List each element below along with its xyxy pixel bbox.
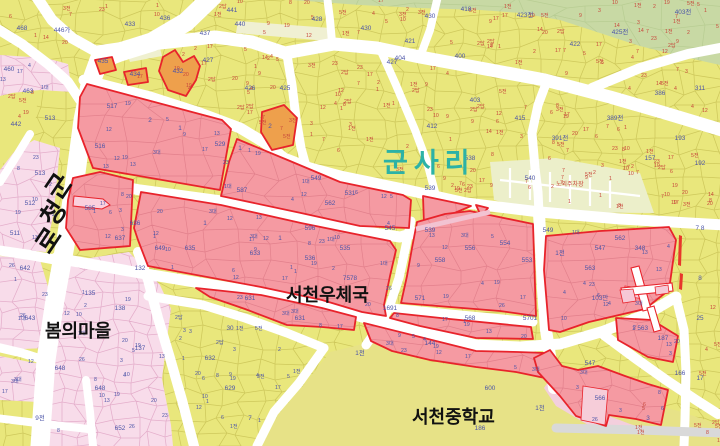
svg-text:2: 2 xyxy=(194,46,197,52)
svg-text:12: 12 xyxy=(106,127,112,133)
svg-text:7: 7 xyxy=(524,105,527,111)
svg-text:2답: 2답 xyxy=(175,314,183,321)
svg-text:12: 12 xyxy=(662,49,668,55)
svg-text:540: 540 xyxy=(525,175,536,182)
svg-text:9: 9 xyxy=(398,333,401,339)
svg-text:568: 568 xyxy=(465,315,476,322)
svg-text:25: 25 xyxy=(696,315,704,322)
svg-text:17: 17 xyxy=(596,42,602,48)
svg-text:192: 192 xyxy=(695,160,706,167)
svg-text:19: 19 xyxy=(671,200,677,206)
svg-text:26: 26 xyxy=(129,424,135,430)
svg-text:1전: 1전 xyxy=(383,102,391,109)
svg-text:19: 19 xyxy=(114,392,120,398)
svg-text:봄의마을: 봄의마을 xyxy=(45,321,111,341)
svg-text:20: 20 xyxy=(304,0,310,6)
svg-text:2답: 2답 xyxy=(8,93,16,100)
svg-text:19: 19 xyxy=(494,280,500,286)
svg-text:1대: 1대 xyxy=(327,235,335,243)
svg-text:1대: 1대 xyxy=(41,83,49,91)
svg-text:20: 20 xyxy=(707,201,713,207)
svg-text:2답: 2답 xyxy=(470,106,478,113)
svg-text:8: 8 xyxy=(658,390,661,396)
svg-text:1전: 1전 xyxy=(634,2,642,9)
svg-text:6: 6 xyxy=(661,406,664,412)
svg-text:1: 1 xyxy=(392,101,395,107)
svg-text:446가: 446가 xyxy=(54,25,71,34)
svg-text:3대: 3대 xyxy=(291,307,299,315)
svg-text:400: 400 xyxy=(455,53,466,60)
svg-text:3대: 3대 xyxy=(11,377,19,385)
svg-text:648: 648 xyxy=(55,365,66,372)
svg-text:1: 1 xyxy=(609,176,612,182)
svg-text:433: 433 xyxy=(125,21,136,28)
svg-text:3대: 3대 xyxy=(580,368,588,376)
svg-text:5전: 5전 xyxy=(255,325,263,332)
svg-text:23: 23 xyxy=(237,295,243,301)
svg-text:2: 2 xyxy=(84,303,87,309)
svg-text:5전: 5전 xyxy=(714,341,720,348)
svg-text:3전: 3전 xyxy=(257,373,265,380)
svg-text:435: 435 xyxy=(98,58,109,65)
svg-text:3: 3 xyxy=(629,39,632,45)
svg-text:600: 600 xyxy=(485,385,496,392)
svg-text:2: 2 xyxy=(451,183,454,189)
svg-text:5전: 5전 xyxy=(691,152,699,159)
svg-text:19: 19 xyxy=(255,151,261,157)
svg-text:8: 8 xyxy=(289,0,292,6)
svg-text:596: 596 xyxy=(305,225,316,232)
svg-text:13: 13 xyxy=(214,131,220,137)
svg-text:4: 4 xyxy=(446,71,449,77)
svg-text:425: 425 xyxy=(280,85,291,92)
svg-text:135: 135 xyxy=(85,290,96,297)
svg-text:391전: 391전 xyxy=(552,133,569,142)
svg-text:1전: 1전 xyxy=(293,368,301,375)
svg-text:20: 20 xyxy=(122,338,128,344)
svg-text:430: 430 xyxy=(425,13,436,20)
svg-text:7: 7 xyxy=(636,49,639,55)
svg-text:10: 10 xyxy=(76,312,82,318)
svg-text:3: 3 xyxy=(646,415,650,422)
svg-text:3: 3 xyxy=(310,121,313,127)
svg-text:642: 642 xyxy=(20,265,31,272)
svg-text:17: 17 xyxy=(502,13,508,19)
svg-text:14: 14 xyxy=(638,28,644,34)
svg-text:1전: 1전 xyxy=(555,248,565,257)
svg-text:2답: 2답 xyxy=(477,103,485,110)
svg-text:20: 20 xyxy=(232,76,238,82)
svg-text:13: 13 xyxy=(256,215,262,221)
svg-text:23: 23 xyxy=(319,239,325,245)
svg-text:8: 8 xyxy=(308,241,311,247)
svg-text:652: 652 xyxy=(115,425,126,432)
svg-text:430: 430 xyxy=(361,25,372,32)
svg-text:2: 2 xyxy=(332,266,335,272)
svg-text:5: 5 xyxy=(583,51,586,57)
svg-text:2: 2 xyxy=(182,52,185,58)
svg-text:20: 20 xyxy=(270,85,276,91)
svg-text:23: 23 xyxy=(612,146,618,152)
svg-text:193: 193 xyxy=(675,135,686,142)
svg-text:412: 412 xyxy=(427,123,438,130)
svg-text:1대: 1대 xyxy=(380,259,388,267)
svg-text:632: 632 xyxy=(205,355,216,362)
svg-text:4: 4 xyxy=(628,86,631,92)
svg-text:7: 7 xyxy=(69,12,72,18)
svg-text:423전: 423전 xyxy=(517,10,534,19)
svg-text:10: 10 xyxy=(624,146,630,152)
svg-text:404: 404 xyxy=(395,55,406,62)
svg-text:166: 166 xyxy=(675,370,686,377)
svg-text:103만: 103만 xyxy=(592,293,609,302)
svg-text:1: 1 xyxy=(290,265,293,271)
svg-text:19: 19 xyxy=(122,155,128,161)
svg-text:1전: 1전 xyxy=(214,11,222,18)
svg-text:8: 8 xyxy=(618,203,621,209)
svg-text:558: 558 xyxy=(435,257,446,264)
svg-text:2답: 2답 xyxy=(412,87,420,94)
svg-text:3전: 3전 xyxy=(683,201,691,208)
svg-text:529: 529 xyxy=(215,141,226,148)
svg-text:536: 536 xyxy=(305,255,316,262)
svg-text:421: 421 xyxy=(405,38,416,45)
svg-text:12: 12 xyxy=(301,192,307,198)
svg-text:9: 9 xyxy=(425,82,428,88)
svg-text:460: 460 xyxy=(4,66,15,73)
svg-text:7: 7 xyxy=(248,415,252,422)
svg-text:5: 5 xyxy=(276,57,279,63)
svg-text:7: 7 xyxy=(322,137,325,143)
svg-text:3: 3 xyxy=(520,134,523,140)
svg-text:20: 20 xyxy=(521,334,527,340)
svg-text:1: 1 xyxy=(310,132,313,138)
svg-text:3: 3 xyxy=(121,227,124,233)
svg-text:17: 17 xyxy=(696,375,704,382)
svg-text:2: 2 xyxy=(268,123,272,130)
svg-text:19: 19 xyxy=(563,114,569,120)
svg-text:7: 7 xyxy=(357,81,360,87)
svg-text:649: 649 xyxy=(155,245,166,252)
svg-text:2: 2 xyxy=(593,170,596,176)
svg-text:1전: 1전 xyxy=(496,129,504,136)
svg-text:4: 4 xyxy=(667,244,670,250)
svg-text:19: 19 xyxy=(15,210,21,216)
svg-text:5: 5 xyxy=(385,19,388,25)
svg-text:9전: 9전 xyxy=(35,413,45,422)
svg-text:426: 426 xyxy=(245,85,256,92)
svg-text:5: 5 xyxy=(697,2,700,8)
svg-text:2답: 2답 xyxy=(246,103,254,110)
svg-text:8: 8 xyxy=(698,275,702,282)
svg-text:2: 2 xyxy=(377,80,380,86)
svg-text:4: 4 xyxy=(18,114,21,120)
svg-text:3: 3 xyxy=(233,347,236,353)
svg-text:12: 12 xyxy=(702,108,708,114)
svg-text:1: 1 xyxy=(182,356,185,362)
svg-text:1대: 1대 xyxy=(302,177,310,185)
svg-text:1: 1 xyxy=(34,33,37,39)
svg-text:1: 1 xyxy=(258,418,261,424)
svg-text:4: 4 xyxy=(691,104,694,110)
svg-text:12: 12 xyxy=(306,33,312,39)
svg-text:5전: 5전 xyxy=(283,133,291,140)
svg-text:3: 3 xyxy=(119,208,122,214)
svg-text:1전: 1전 xyxy=(515,59,523,66)
svg-text:1: 1 xyxy=(568,199,571,205)
svg-text:3: 3 xyxy=(183,328,186,334)
svg-text:547: 547 xyxy=(595,245,606,252)
svg-text:10: 10 xyxy=(664,192,670,198)
svg-text:4: 4 xyxy=(28,63,31,69)
svg-text:8: 8 xyxy=(396,313,399,319)
svg-text:1전: 1전 xyxy=(355,348,365,357)
svg-text:17: 17 xyxy=(555,48,561,54)
svg-text:631: 631 xyxy=(295,315,306,322)
svg-text:2답: 2답 xyxy=(658,164,666,171)
svg-text:17: 17 xyxy=(479,178,485,184)
svg-text:26: 26 xyxy=(386,286,392,292)
svg-text:17: 17 xyxy=(367,72,373,78)
svg-text:403전: 403전 xyxy=(675,7,692,16)
svg-text:5: 5 xyxy=(244,47,247,53)
svg-text:633: 633 xyxy=(250,250,261,257)
svg-text:9: 9 xyxy=(258,71,261,77)
svg-text:1전: 1전 xyxy=(619,158,627,165)
svg-text:13: 13 xyxy=(666,342,672,348)
svg-text:19: 19 xyxy=(125,297,131,303)
svg-text:535: 535 xyxy=(340,245,351,252)
svg-text:1천: 1천 xyxy=(535,403,545,412)
svg-text:8: 8 xyxy=(94,377,97,383)
svg-text:144: 144 xyxy=(425,340,436,347)
svg-text:1전: 1전 xyxy=(635,424,643,431)
svg-text:3전: 3전 xyxy=(556,106,564,113)
svg-text:17: 17 xyxy=(247,110,253,116)
svg-text:631: 631 xyxy=(245,295,256,302)
svg-text:3: 3 xyxy=(598,8,601,14)
svg-text:서천중학교: 서천중학교 xyxy=(412,406,495,427)
svg-text:571: 571 xyxy=(415,295,426,302)
svg-text:3전: 3전 xyxy=(289,117,297,124)
svg-text:554: 554 xyxy=(500,240,511,247)
svg-text:511: 511 xyxy=(10,230,21,237)
svg-text:1: 1 xyxy=(704,8,707,14)
svg-text:10: 10 xyxy=(628,171,634,177)
svg-text:3: 3 xyxy=(349,122,352,128)
svg-text:637: 637 xyxy=(115,235,126,242)
svg-text:20: 20 xyxy=(195,371,201,377)
svg-text:9: 9 xyxy=(579,13,582,19)
svg-text:14: 14 xyxy=(43,35,49,41)
svg-text:7: 7 xyxy=(606,124,609,130)
svg-text:10: 10 xyxy=(612,0,618,6)
svg-text:1전: 1전 xyxy=(665,28,673,35)
svg-text:4: 4 xyxy=(583,281,586,287)
svg-text:562: 562 xyxy=(615,235,626,242)
svg-text:13: 13 xyxy=(656,267,662,273)
svg-text:585: 585 xyxy=(85,205,96,212)
svg-text:13: 13 xyxy=(0,77,6,83)
svg-text:3: 3 xyxy=(619,408,622,414)
svg-text:2: 2 xyxy=(278,347,281,353)
svg-text:2답: 2답 xyxy=(237,104,245,111)
svg-text:10: 10 xyxy=(124,372,130,378)
svg-text:549: 549 xyxy=(543,227,554,234)
svg-text:14: 14 xyxy=(486,129,492,135)
svg-text:9: 9 xyxy=(676,39,679,45)
svg-text:9: 9 xyxy=(565,71,568,77)
svg-text:7: 7 xyxy=(562,168,565,174)
svg-text:9: 9 xyxy=(585,175,588,181)
svg-text:5: 5 xyxy=(514,365,517,371)
svg-text:513: 513 xyxy=(35,170,46,177)
svg-text:8: 8 xyxy=(57,428,60,434)
svg-text:23: 23 xyxy=(401,348,407,354)
svg-text:513: 513 xyxy=(45,115,56,122)
svg-text:5: 5 xyxy=(450,40,453,46)
svg-text:12: 12 xyxy=(603,302,609,308)
svg-text:132: 132 xyxy=(135,265,146,272)
svg-text:12: 12 xyxy=(442,245,448,251)
svg-text:463: 463 xyxy=(23,88,34,95)
svg-text:7578: 7578 xyxy=(343,275,358,282)
svg-text:23: 23 xyxy=(467,184,473,190)
svg-text:26: 26 xyxy=(9,263,15,269)
svg-text:1: 1 xyxy=(294,269,297,275)
svg-text:3전: 3전 xyxy=(399,11,407,18)
svg-text:26: 26 xyxy=(592,417,598,423)
svg-text:4: 4 xyxy=(674,86,677,92)
svg-text:3대: 3대 xyxy=(635,299,643,307)
svg-text:2답: 2답 xyxy=(208,76,216,83)
svg-text:517: 517 xyxy=(107,103,118,110)
svg-text:5: 5 xyxy=(390,194,393,200)
svg-text:7: 7 xyxy=(563,48,566,54)
svg-text:12: 12 xyxy=(320,105,326,111)
svg-text:1: 1 xyxy=(599,193,602,199)
svg-text:2답: 2답 xyxy=(341,69,349,76)
svg-text:7 8: 7 8 xyxy=(696,225,705,232)
svg-text:13: 13 xyxy=(103,164,109,170)
svg-text:6: 6 xyxy=(221,415,224,421)
svg-text:389전: 389전 xyxy=(607,113,624,122)
svg-text:7: 7 xyxy=(566,148,569,154)
svg-text:23: 23 xyxy=(641,73,647,79)
svg-text:2답: 2답 xyxy=(668,42,676,49)
svg-text:422: 422 xyxy=(570,41,581,48)
svg-text:17: 17 xyxy=(100,201,106,207)
svg-text:1691: 1691 xyxy=(383,305,398,312)
svg-text:6: 6 xyxy=(337,148,340,154)
svg-text:30: 30 xyxy=(226,325,234,332)
svg-text:7: 7 xyxy=(646,29,649,35)
svg-text:17: 17 xyxy=(207,44,213,50)
svg-text:2: 2 xyxy=(148,117,152,124)
svg-text:23: 23 xyxy=(427,107,433,113)
svg-text:13: 13 xyxy=(104,398,110,404)
svg-text:1: 1 xyxy=(178,125,182,132)
svg-text:6: 6 xyxy=(595,134,598,140)
svg-text:12: 12 xyxy=(114,156,120,162)
svg-text:415: 415 xyxy=(515,115,526,122)
svg-text:643: 643 xyxy=(25,315,36,322)
svg-text:4: 4 xyxy=(705,347,708,353)
svg-text:563: 563 xyxy=(585,265,596,272)
svg-text:3대: 3대 xyxy=(282,309,290,317)
svg-text:26: 26 xyxy=(499,303,505,309)
svg-text:12: 12 xyxy=(105,234,111,240)
svg-text:6: 6 xyxy=(548,156,551,162)
svg-text:10: 10 xyxy=(237,0,243,5)
svg-text:434: 434 xyxy=(130,71,141,78)
svg-text:5: 5 xyxy=(491,234,494,240)
svg-text:5: 5 xyxy=(287,374,290,380)
svg-text:386: 386 xyxy=(655,90,666,97)
svg-text:549: 549 xyxy=(311,175,322,182)
svg-text:1대: 1대 xyxy=(572,228,580,236)
svg-text:10: 10 xyxy=(202,394,208,400)
svg-text:14: 14 xyxy=(262,55,268,61)
svg-text:17: 17 xyxy=(520,295,526,301)
svg-text:17: 17 xyxy=(465,354,471,360)
svg-text:9: 9 xyxy=(267,21,270,27)
svg-text:1전: 1전 xyxy=(646,148,654,155)
svg-text:437: 437 xyxy=(200,30,211,37)
svg-text:17: 17 xyxy=(668,155,674,161)
svg-text:9: 9 xyxy=(417,263,420,269)
svg-text:12: 12 xyxy=(64,311,70,317)
svg-text:10: 10 xyxy=(433,113,439,119)
svg-text:12: 12 xyxy=(381,194,387,200)
svg-text:3: 3 xyxy=(601,163,604,169)
svg-text:3: 3 xyxy=(637,20,640,26)
svg-text:516: 516 xyxy=(95,143,106,150)
svg-text:5전: 5전 xyxy=(19,97,27,104)
svg-text:9: 9 xyxy=(471,119,474,125)
svg-text:23: 23 xyxy=(162,413,168,419)
svg-text:6: 6 xyxy=(496,119,499,125)
svg-text:539: 539 xyxy=(425,185,436,192)
svg-text:7: 7 xyxy=(357,30,360,36)
svg-text:2답: 2답 xyxy=(477,40,485,47)
svg-text:23: 23 xyxy=(651,36,657,42)
svg-text:1전: 1전 xyxy=(673,18,681,25)
svg-text:3: 3 xyxy=(685,69,688,75)
svg-text:23: 23 xyxy=(99,7,105,13)
svg-text:6: 6 xyxy=(601,60,604,66)
svg-text:512: 512 xyxy=(25,200,36,207)
svg-text:9: 9 xyxy=(446,114,449,120)
svg-text:468: 468 xyxy=(17,25,28,32)
svg-text:8: 8 xyxy=(121,192,124,198)
svg-text:6: 6 xyxy=(232,268,235,274)
svg-text:1: 1 xyxy=(498,44,501,50)
svg-text:5전: 5전 xyxy=(661,80,669,87)
svg-text:3: 3 xyxy=(576,385,579,391)
svg-text:3전: 3전 xyxy=(63,5,71,12)
svg-text:19: 19 xyxy=(664,0,670,6)
svg-text:26: 26 xyxy=(79,357,85,363)
svg-text:311: 311 xyxy=(695,85,706,92)
svg-text:20: 20 xyxy=(572,131,578,137)
svg-text:566: 566 xyxy=(595,395,606,402)
svg-text:17: 17 xyxy=(2,389,8,395)
svg-text:19: 19 xyxy=(464,322,470,328)
svg-text:12: 12 xyxy=(196,405,202,411)
svg-text:5전: 5전 xyxy=(687,0,695,7)
svg-text:10: 10 xyxy=(335,92,341,98)
